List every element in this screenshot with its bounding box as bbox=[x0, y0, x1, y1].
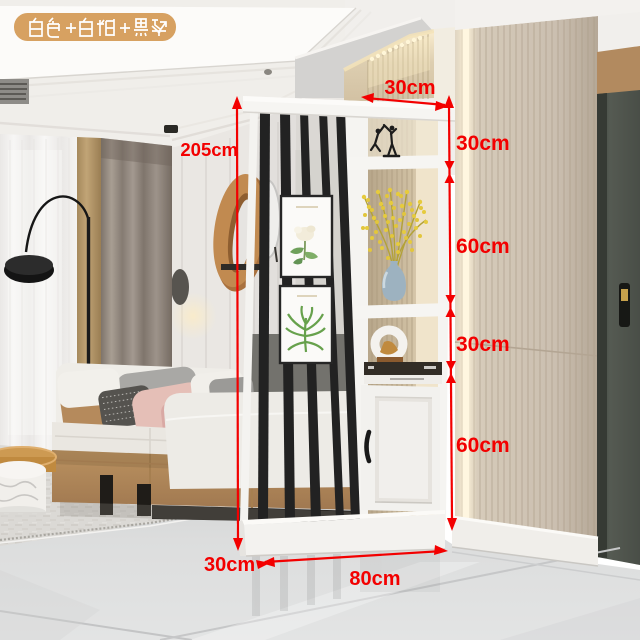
svg-text:80cm: 80cm bbox=[349, 568, 400, 590]
svg-text:30cm: 30cm bbox=[204, 554, 255, 576]
svg-text:205cm: 205cm bbox=[180, 139, 238, 160]
svg-text:30cm: 30cm bbox=[456, 132, 510, 155]
svg-text:30cm: 30cm bbox=[456, 333, 510, 356]
svg-text:60cm: 60cm bbox=[456, 235, 510, 258]
svg-text:60cm: 60cm bbox=[456, 434, 510, 457]
svg-text:30cm: 30cm bbox=[384, 77, 435, 99]
